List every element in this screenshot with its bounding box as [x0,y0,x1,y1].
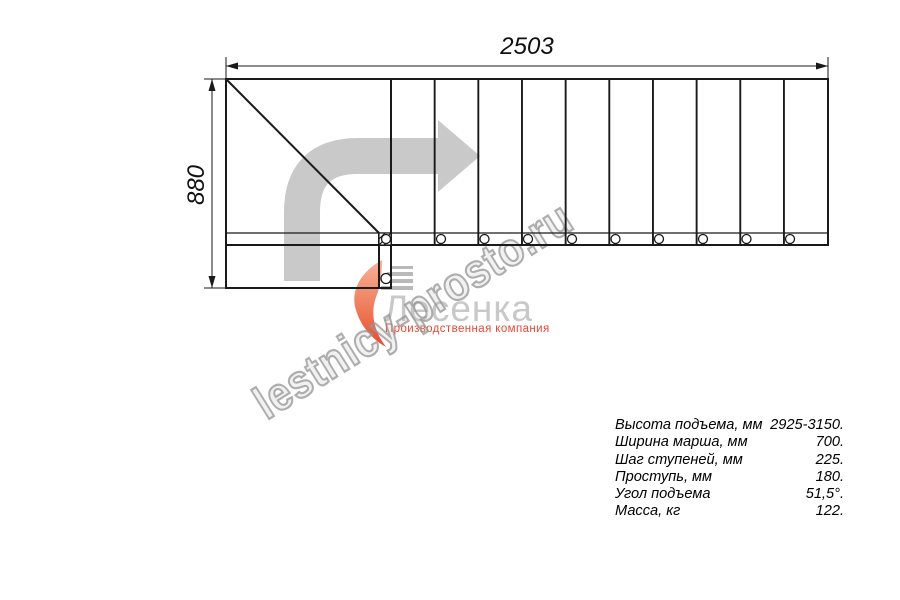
dimension-height-label: 880 [183,156,211,214]
spec-row: Шаг ступеней, мм225. [615,452,844,469]
bolt-hole [611,235,620,244]
spec-label: Ширина марша, мм [615,434,748,451]
spec-label: Высота подъема, мм [615,417,763,434]
spec-row: Масса, кг122. [615,503,844,520]
spec-row: Угол подъема51,5°. [615,486,844,503]
spec-label: Угол подъема [615,486,710,503]
spec-row: Высота подъема, мм2925-3150. [615,417,844,434]
bolt-hole [786,235,795,244]
bolt-hole [568,235,577,244]
spec-label: Масса, кг [615,503,680,520]
bolt-hole [524,235,533,244]
bolt-hole [382,235,391,244]
bolt-hole [381,274,391,284]
dimension-arrow [816,63,828,70]
spec-value: 51,5°. [806,486,844,503]
spec-row: Проступь, мм180. [615,469,844,486]
spec-value: 122. [816,503,844,520]
spec-label: Проступь, мм [615,469,712,486]
bolt-hole [480,235,489,244]
dimension-width-label: 2503 [467,33,587,61]
spec-table: Высота подъема, мм2925-3150.Ширина марша… [615,417,844,521]
spec-label: Шаг ступеней, мм [615,452,743,469]
bolt-hole [437,235,446,244]
bolt-hole [699,235,708,244]
staircase-drawing-canvas: Лесенка Производственная компания lestni… [0,0,900,600]
spec-value: 700. [816,434,844,451]
spec-value: 180. [816,469,844,486]
dimension-arrow [226,63,238,70]
direction-arrow-head-icon [438,120,480,192]
spec-value: 2925-3150. [770,417,844,434]
bolt-hole [742,235,751,244]
dimension-arrow [209,79,216,91]
bolt-hole [655,235,664,244]
dimension-arrow [209,276,216,288]
spec-row: Ширина марша, мм700. [615,434,844,451]
spec-value: 225. [816,452,844,469]
